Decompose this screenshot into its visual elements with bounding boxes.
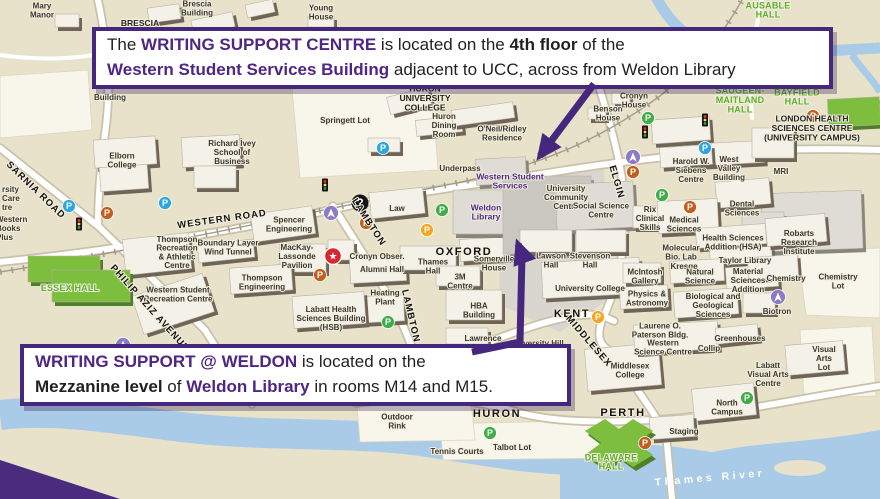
callout-line: Western Student Services Building adjace… (107, 58, 818, 83)
svg-text:P: P (439, 205, 445, 215)
svg-text:P: P (702, 143, 708, 153)
map-label: Taylor Library (719, 256, 772, 265)
svg-text:★: ★ (329, 252, 338, 263)
callout-text-segment: in rooms M14 and M15. (310, 377, 493, 396)
map-label: CronynHouse (620, 92, 648, 110)
building (55, 14, 82, 31)
map-label: BresciaBuilding (181, 0, 213, 17)
map-label: Western StudentRecreation Centre (144, 286, 213, 304)
map-label: WeldonLibrary (471, 203, 502, 222)
map-label: Alumni Hall (360, 265, 404, 274)
map-label: OXFORD (436, 246, 493, 258)
information-icon (324, 206, 339, 221)
callout-text-segment: WRITING SUPPORT CENTRE (141, 35, 376, 54)
observatory-star-icon: ★ (325, 248, 342, 265)
map-label: ElbornCollege (108, 152, 137, 170)
writing-support-weldon-callout: WRITING SUPPORT @ WELDON is located on t… (20, 344, 571, 406)
traffic-light-icon (642, 126, 648, 139)
map-label: HURON (473, 408, 521, 420)
map-label: Law (389, 204, 405, 213)
parking-icon: P (684, 201, 697, 214)
callout-text-segment: WRITING SUPPORT @ WELDON (35, 352, 297, 371)
svg-text:P: P (424, 225, 430, 235)
callout-text-segment: Weldon Library (186, 377, 309, 396)
map-label: NaturalScience (685, 268, 716, 286)
callout-text-segment: is located on the (376, 35, 509, 54)
parking-icon: P (159, 197, 172, 210)
callout-text-segment: The (107, 35, 141, 54)
parking-icon: P (627, 166, 640, 179)
information-icon (771, 290, 786, 305)
callout-text-segment: Mezzanine level (35, 377, 163, 396)
map-label: BensonHouse (593, 105, 622, 123)
svg-text:P: P (744, 393, 750, 403)
svg-text:P: P (66, 201, 72, 211)
parking-icon: P (656, 189, 669, 202)
map-label: PERTH (600, 407, 645, 419)
callout-text-segment: is located on the (297, 352, 426, 371)
map-label: Laurene O.Paterson Bldg. (632, 322, 688, 340)
svg-text:P: P (487, 428, 493, 438)
parking-icon: P (639, 437, 652, 450)
parking-icon: P (484, 427, 497, 440)
map-label: University College (555, 284, 625, 293)
svg-text:P: P (645, 113, 651, 123)
map-label: Biotron (763, 307, 792, 316)
callout-text-segment: of (163, 377, 187, 396)
building (194, 166, 239, 192)
map-label: RobartsResearchInstitute (781, 229, 817, 256)
map-label: Underpass (439, 164, 481, 173)
svg-text:P: P (104, 208, 110, 218)
parking-icon: P (741, 392, 754, 405)
map-label: Health SciencesAddition (HSA) (702, 234, 764, 252)
parking-icon: P (377, 142, 390, 155)
map-label: ThompsonEngineering (239, 274, 285, 292)
callout-line: WRITING SUPPORT @ WELDON is located on t… (35, 350, 556, 375)
map-label: Springett Lot (320, 116, 370, 125)
map-label: ESSEX HALL (41, 283, 100, 293)
svg-text:P: P (642, 438, 648, 448)
parking-icon: P (382, 316, 395, 329)
map-label: Building (94, 93, 126, 102)
map-label: HuronDiningRoom (432, 112, 457, 139)
map-label: MacKay-LassondePavilion (278, 243, 316, 270)
parking-icon: P (314, 269, 327, 282)
parking-icon: P (436, 204, 449, 217)
map-label: MedicalSciences (667, 216, 702, 234)
callout-text-segment: adjacent to UCC, across from Weldon Libr… (389, 60, 735, 79)
map-label: LONDON HEALTHSCIENCES CENTRE(UNIVERSITY … (764, 114, 860, 143)
svg-text:P: P (659, 190, 665, 200)
map-label: MiddlesexCollege (611, 362, 650, 380)
traffic-light-icon (322, 179, 328, 192)
parking-icon: P (421, 224, 434, 237)
map-label: Collip (698, 344, 720, 353)
parking-icon: P (101, 207, 114, 220)
callout-text-segment: of the (577, 35, 624, 54)
parking-icon: P (642, 112, 655, 125)
map-label: Greenhouses (714, 334, 766, 343)
parking-icon: P (699, 142, 712, 155)
map-label: Staging (669, 427, 698, 436)
svg-text:P: P (595, 312, 601, 322)
svg-text:P: P (317, 270, 323, 280)
svg-text:P: P (385, 317, 391, 327)
parking-icon: P (592, 311, 605, 324)
map-label: Tennis Courts (430, 447, 484, 456)
information-icon (626, 150, 641, 165)
map-label: Cronyn Obser. (349, 252, 404, 261)
map-label: Chemistry (766, 274, 806, 283)
svg-text:P: P (162, 198, 168, 208)
map-label: Talbot Lot (493, 443, 531, 452)
campus-map-page: PPPPPPPPPPPPPPPPPPP?★ MaryManorBRESCIABr… (0, 0, 880, 499)
map-label: MaryManor (30, 2, 54, 20)
traffic-light-icon (76, 218, 82, 231)
callout-line: The WRITING SUPPORT CENTRE is located on… (107, 33, 818, 58)
map-label: MRI (774, 167, 789, 176)
map-label: MaterialSciencesAddition (731, 267, 766, 294)
svg-text:P: P (687, 202, 693, 212)
map-label: Boundary LayerWind Tunnel (198, 239, 259, 257)
callout-line: Mezzanine level of Weldon Library in roo… (35, 375, 556, 400)
map-label: Lawrence (465, 334, 502, 343)
writing-support-centre-callout: The WRITING SUPPORT CENTRE is located on… (92, 27, 833, 89)
map-label: O'Neil/RidleyResidence (477, 125, 527, 143)
map-label: McIntoshGallery (627, 268, 662, 286)
map-label: MolecularBio. Lab (662, 244, 699, 262)
callout-text-segment: 4th floor (509, 35, 577, 54)
map-label: Physics &Astronomy (626, 290, 669, 308)
map-label: Richard IveySchool ofBusiness (208, 139, 256, 166)
callout-text-segment: Western Student Services Building (107, 60, 389, 79)
svg-text:P: P (380, 143, 386, 153)
map-label: YoungHouse (309, 4, 334, 22)
traffic-light-icon (702, 114, 708, 127)
svg-text:P: P (630, 167, 636, 177)
